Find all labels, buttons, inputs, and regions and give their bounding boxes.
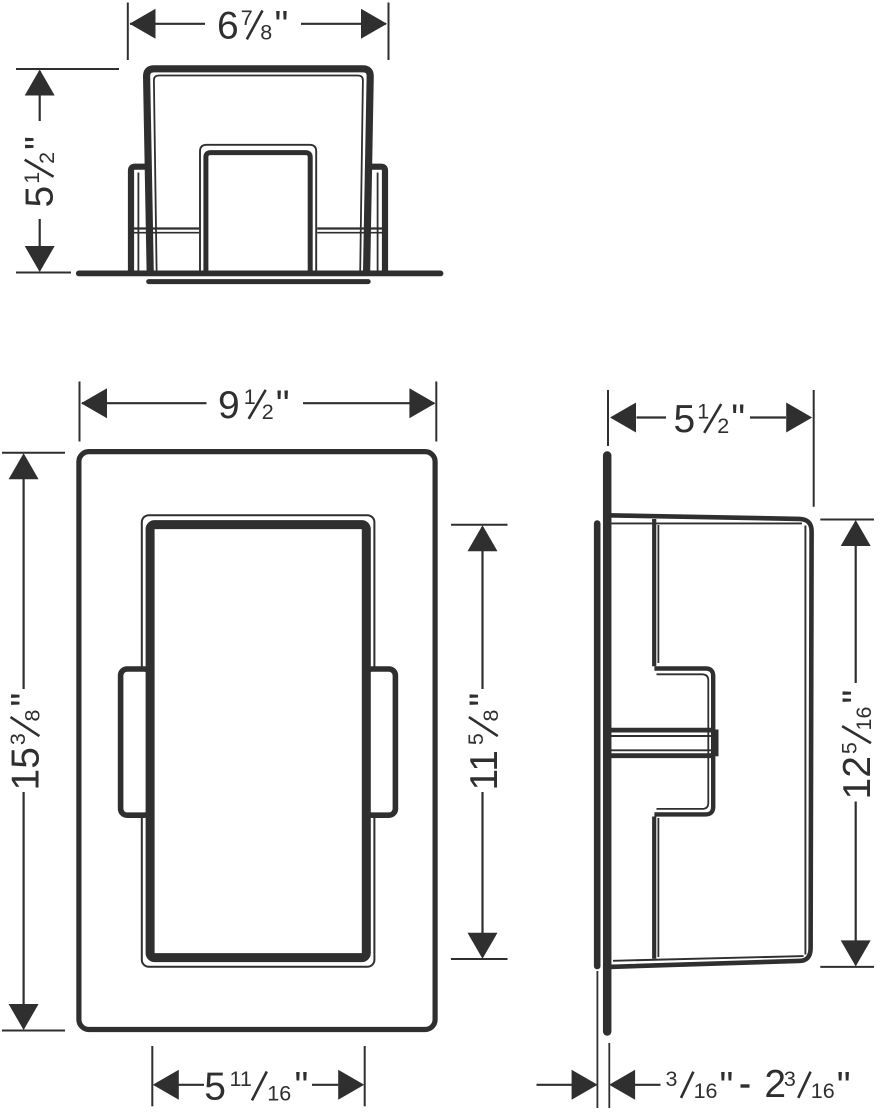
svg-text:7: 7 bbox=[241, 6, 253, 30]
svg-text:2: 2 bbox=[35, 152, 59, 164]
svg-text:11: 11 bbox=[230, 1067, 252, 1091]
svg-text:9: 9 bbox=[218, 384, 240, 427]
svg-text:5: 5 bbox=[204, 1065, 226, 1108]
svg-text:": " bbox=[837, 1065, 851, 1108]
svg-text:1: 1 bbox=[697, 399, 709, 423]
svg-text:3: 3 bbox=[6, 733, 30, 745]
svg-text:16: 16 bbox=[694, 1079, 718, 1103]
svg-text:3: 3 bbox=[784, 1067, 796, 1091]
svg-text:16: 16 bbox=[811, 1079, 835, 1103]
svg-text:2: 2 bbox=[717, 414, 729, 438]
svg-text:15: 15 bbox=[4, 747, 47, 790]
svg-text:8: 8 bbox=[21, 710, 45, 722]
svg-text:5: 5 bbox=[19, 186, 62, 208]
svg-text:": " bbox=[720, 1065, 734, 1108]
svg-text:8: 8 bbox=[260, 21, 272, 45]
svg-text:2: 2 bbox=[764, 1063, 786, 1106]
svg-text:5: 5 bbox=[464, 733, 488, 745]
svg-text:": " bbox=[276, 383, 290, 426]
svg-text:11: 11 bbox=[463, 750, 506, 791]
svg-text:6: 6 bbox=[217, 4, 239, 47]
svg-text:": " bbox=[295, 1065, 309, 1108]
svg-text:8: 8 bbox=[479, 710, 503, 722]
svg-text:3: 3 bbox=[666, 1067, 678, 1091]
svg-text:": " bbox=[731, 398, 745, 441]
svg-text:12: 12 bbox=[836, 756, 879, 799]
svg-text:2: 2 bbox=[262, 400, 274, 424]
svg-text:": " bbox=[18, 136, 61, 150]
svg-text:16: 16 bbox=[267, 1082, 291, 1106]
svg-text:5: 5 bbox=[674, 398, 696, 441]
svg-text:": " bbox=[462, 693, 505, 707]
svg-text:1: 1 bbox=[20, 172, 44, 184]
svg-text:16: 16 bbox=[852, 707, 876, 731]
svg-text:1: 1 bbox=[244, 385, 256, 409]
svg-text:5: 5 bbox=[837, 742, 861, 754]
svg-text:": " bbox=[836, 690, 879, 704]
svg-text:": " bbox=[4, 693, 47, 707]
svg-text:": " bbox=[275, 4, 289, 47]
